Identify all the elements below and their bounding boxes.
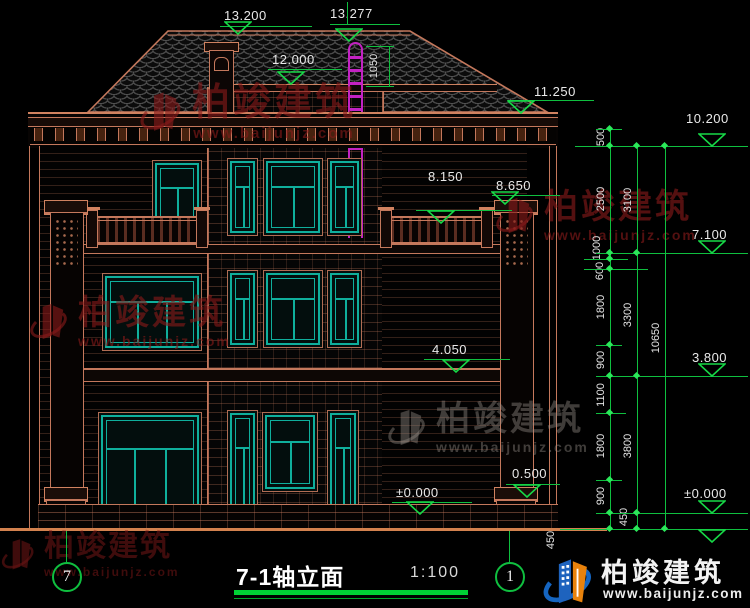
elevation-label-flat-roof: 12.000	[272, 52, 315, 67]
balcony-slab	[84, 244, 530, 254]
axis-number-left: 7	[63, 568, 71, 585]
title-underline-thin	[234, 598, 468, 599]
window-2f-a	[102, 273, 202, 351]
window-1f-b	[227, 410, 258, 514]
dimension-line	[509, 531, 510, 562]
window-2f-b	[227, 270, 258, 348]
window-3f-c	[263, 158, 323, 236]
elevation-label-plinth-top: 0.500	[512, 466, 547, 481]
title-underline-thick	[234, 590, 468, 595]
elevation-marker-triangle	[507, 100, 535, 114]
axis-bubble-7: 7	[52, 562, 82, 592]
dim-inner-3: 600	[594, 262, 606, 280]
window-3f-d	[327, 158, 362, 236]
elevation-marker-triangle	[698, 363, 726, 377]
dimension-line	[665, 146, 666, 529]
wall-right-edge	[556, 146, 557, 528]
elevation-label-balcony: 8.150	[428, 169, 463, 184]
window-1f-d	[327, 410, 359, 514]
elevation-marker-triangle	[427, 210, 455, 224]
railing-post	[86, 210, 98, 248]
elevation-label-ladder-top: 13.277	[330, 6, 373, 21]
dim-inner-6: 1100	[595, 383, 607, 407]
dim-inner-5: 900	[595, 351, 607, 369]
elevation-marker-triangle	[224, 21, 252, 35]
brand-logo-icon	[543, 550, 599, 608]
dim-middle-0: 3100	[622, 188, 634, 212]
dim-inner-0: 500	[595, 128, 607, 146]
dim-inner-2: 1000	[591, 236, 603, 260]
dim-inner-4: 1800	[595, 295, 607, 319]
ground-line	[0, 528, 607, 531]
cornice-dentils	[30, 127, 556, 145]
railing-post	[196, 210, 208, 248]
brand-logo-url: www.baijunjz.com	[603, 586, 744, 601]
elevation-marker-triangle	[442, 359, 470, 373]
brand-logo-name: 柏竣建筑	[601, 551, 725, 590]
wall-left-edge	[29, 146, 30, 528]
elevation-label-zero-building: ±0.000	[396, 485, 439, 500]
dim-middle-1: 3300	[622, 303, 634, 327]
dim-inner-7: 1800	[595, 434, 607, 458]
elevation-drawing: 柏竣建筑 www.baijunjz.com 柏竣建筑 www.baijunjz.…	[0, 0, 750, 608]
dimension-line	[389, 46, 390, 86]
stone-plinth	[38, 504, 558, 529]
wall-left-edge-inner	[39, 146, 40, 528]
elevation-marker-triangle	[277, 71, 305, 85]
dim-middle-2: 3800	[622, 434, 634, 458]
dimension-line	[366, 86, 394, 87]
railing-post	[481, 210, 493, 248]
elevation-marker-triangle	[513, 484, 541, 498]
flat-roof-parapet	[233, 84, 497, 92]
dim-middle-3: 450	[545, 531, 557, 549]
elevation-marker-triangle	[698, 529, 726, 543]
elevation-label-right-top: 10.200	[686, 111, 729, 126]
elevation-marker-triangle	[698, 500, 726, 514]
elevation-marker-triangle	[406, 501, 434, 515]
pilaster-right-texture	[504, 218, 528, 266]
wall-right-edge-inner	[549, 146, 550, 528]
pilaster-left-texture	[54, 218, 78, 266]
dimension-line	[347, 2, 348, 24]
dimension-line	[584, 269, 648, 270]
elevation-label-zero-right: ±0.000	[684, 486, 727, 501]
window-1f-a	[98, 412, 202, 514]
dimension-line	[610, 129, 611, 529]
elevation-marker-triangle	[491, 191, 519, 205]
dim-outer-0: 10650	[650, 323, 662, 354]
cornice-band	[28, 117, 558, 127]
cornice	[28, 112, 558, 148]
drawing-scale: 1:100	[410, 564, 460, 582]
elevation-marker-triangle	[335, 28, 363, 42]
elevation-marker-triangle	[698, 133, 726, 147]
balcony-railing-left	[88, 216, 207, 244]
drawing-title: 7-1轴立面	[236, 558, 344, 592]
window-1f-c	[262, 412, 318, 492]
elevation-marker-triangle	[698, 240, 726, 254]
elevation-label-eave: 11.250	[534, 84, 576, 99]
dim-inner-8: 900	[595, 487, 607, 505]
dimension-line	[330, 24, 400, 25]
chimney	[209, 50, 234, 115]
dim-inner-1: 2500	[595, 187, 607, 211]
axis-bubble-1: 1	[495, 562, 525, 592]
window-2f-d	[327, 270, 362, 348]
dimension-line	[637, 146, 638, 529]
dim-inner-9: 450	[618, 508, 630, 526]
window-3f-b	[227, 158, 258, 236]
railing-post	[380, 210, 392, 248]
elevation-label-floor2: 4.050	[432, 342, 467, 357]
window-2f-c	[263, 270, 323, 348]
dimension-line	[66, 531, 67, 562]
axis-number-right: 1	[506, 568, 514, 585]
dim-ladder-height: 1050	[368, 54, 380, 78]
dimension-line	[268, 69, 342, 70]
